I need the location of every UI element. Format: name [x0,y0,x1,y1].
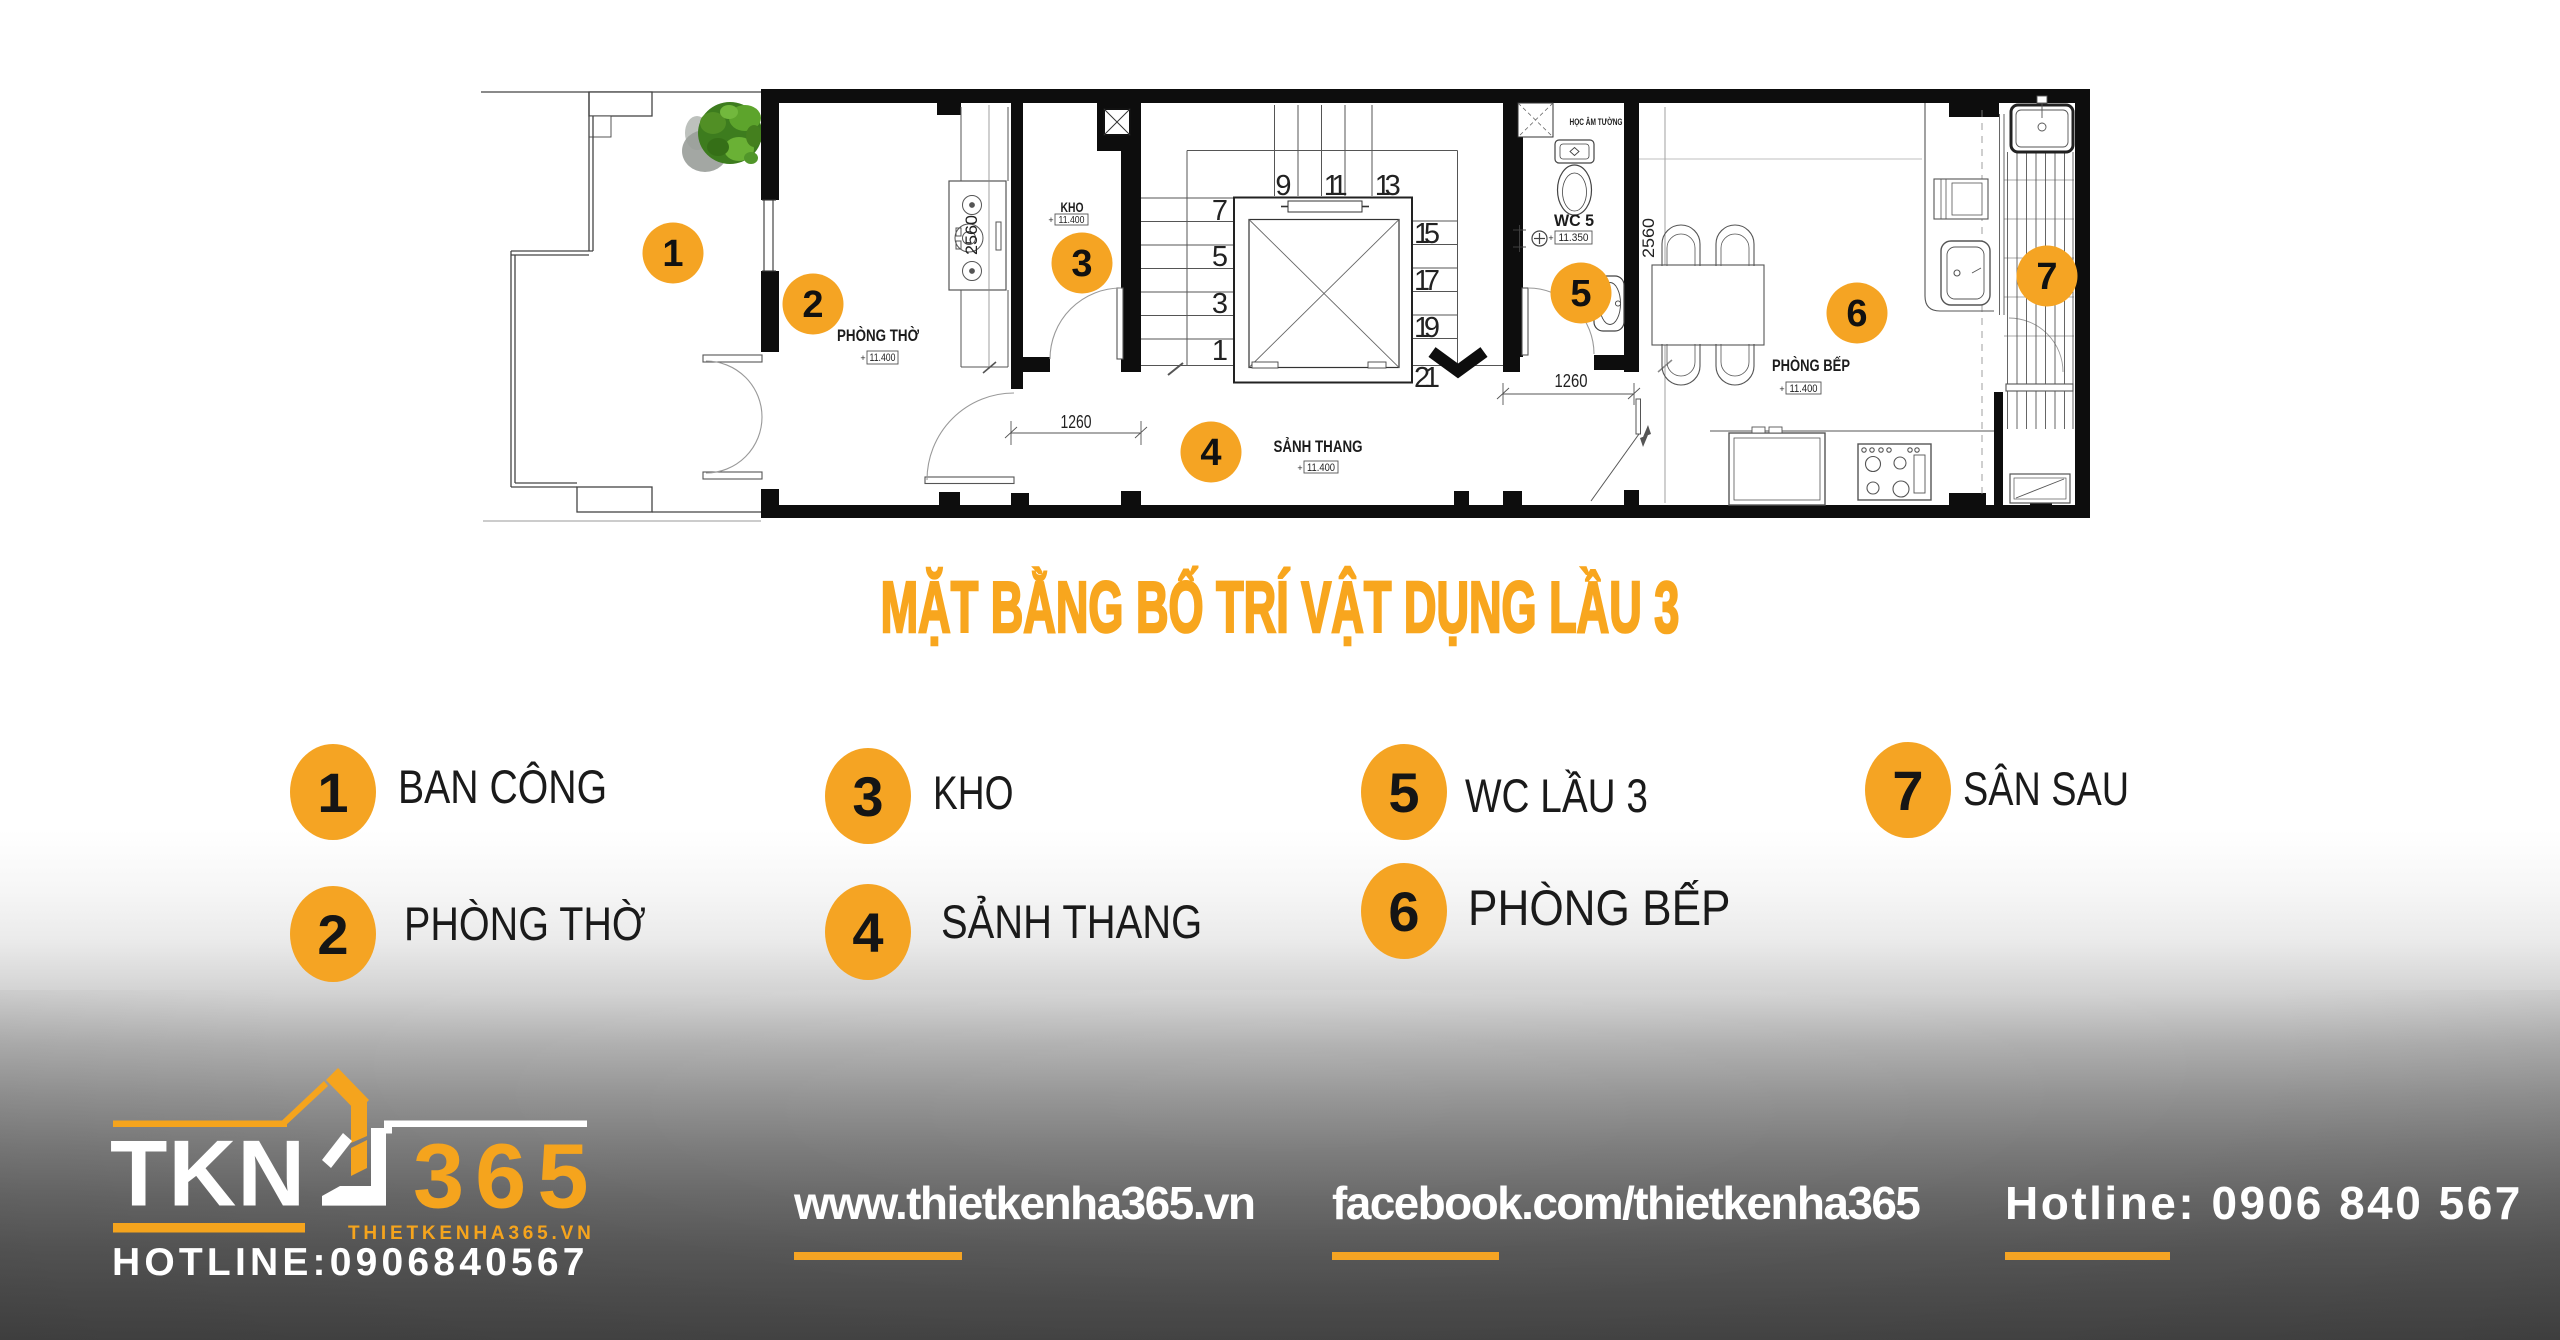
svg-text:11.350: 11.350 [1559,232,1589,244]
svg-text:11.400: 11.400 [870,352,896,364]
svg-text:SẢNH THANG: SẢNH THANG [1274,437,1363,456]
svg-text:7: 7 [1212,195,1228,227]
svg-text:6: 6 [1846,293,1867,335]
svg-text:11.400: 11.400 [1059,215,1085,226]
svg-text:+: + [1548,233,1553,243]
svg-text:1: 1 [1212,335,1228,367]
svg-text:2560: 2560 [1639,218,1658,258]
svg-text:2: 2 [802,284,823,326]
svg-text:+: + [1779,384,1784,394]
svg-text:1260: 1260 [1061,412,1092,432]
svg-text:KHO: KHO [1061,199,1084,215]
svg-text:3: 3 [1212,288,1228,320]
svg-text:11.400: 11.400 [1790,383,1818,395]
svg-text:PHÒNG THỜ: PHÒNG THỜ [837,326,919,345]
svg-text:19: 19 [1414,312,1440,344]
svg-text:13: 13 [1375,170,1401,202]
svg-text:1: 1 [662,233,683,275]
svg-text:7: 7 [2036,256,2057,298]
svg-text:9: 9 [1275,170,1291,202]
svg-text:21: 21 [1414,362,1440,394]
svg-text:PHÒNG BẾP: PHÒNG BẾP [1772,356,1850,375]
svg-text:15: 15 [1414,218,1440,250]
svg-text:+: + [1297,463,1302,473]
svg-text:+: + [1048,215,1053,225]
svg-text:WC 5: WC 5 [1554,211,1594,230]
svg-text:3: 3 [1071,243,1092,285]
svg-text:5: 5 [1570,273,1591,315]
svg-text:11.400: 11.400 [1307,462,1335,474]
svg-text:TKN: TKN [110,1121,306,1226]
svg-text:1260: 1260 [1555,371,1588,391]
svg-text:11: 11 [1324,170,1348,202]
svg-text:4: 4 [1200,432,1221,474]
svg-text:5: 5 [1212,241,1228,273]
svg-text:+: + [860,353,865,363]
svg-text:2560: 2560 [962,215,981,255]
svg-text:HOTLINE:0906840567: HOTLINE:0906840567 [112,1241,589,1284]
svg-text:17: 17 [1414,265,1440,297]
svg-text:365: 365 [413,1126,600,1228]
svg-text:HỌC ÂM TƯỜNG: HỌC ÂM TƯỜNG [1570,116,1623,127]
